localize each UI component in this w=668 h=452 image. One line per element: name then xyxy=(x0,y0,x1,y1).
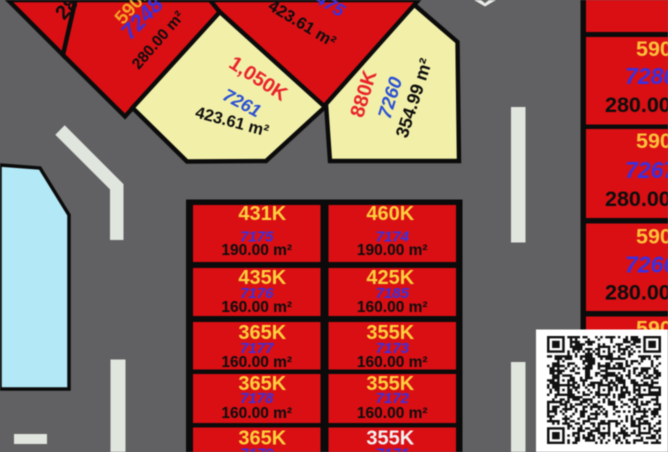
svg-text:590K: 590K xyxy=(636,225,668,249)
svg-text:160.00 m²: 160.00 m² xyxy=(357,405,428,422)
svg-text:590K: 590K xyxy=(636,37,668,61)
svg-text:7280: 7280 xyxy=(625,63,668,89)
svg-text:160.00 m²: 160.00 m² xyxy=(357,354,428,371)
svg-text:190.00 m²: 190.00 m² xyxy=(221,242,292,259)
svg-text:190.00 m²: 190.00 m² xyxy=(357,242,428,259)
svg-text:280.00 m²: 280.00 m² xyxy=(605,187,668,211)
svg-text:160.00 m²: 160.00 m² xyxy=(357,299,428,316)
svg-text:160.00 m²: 160.00 m² xyxy=(221,405,292,422)
svg-text:7267: 7267 xyxy=(625,157,668,183)
svg-text:7266: 7266 xyxy=(625,252,668,278)
svg-text:7179: 7179 xyxy=(240,446,274,452)
svg-text:160.00 m²: 160.00 m² xyxy=(221,299,292,316)
svg-text:7171: 7171 xyxy=(376,446,409,452)
svg-text:460K: 460K xyxy=(366,203,414,225)
svg-text:280.00 m²: 280.00 m² xyxy=(605,281,668,305)
svg-text:431K: 431K xyxy=(238,203,286,225)
svg-text:160.00 m²: 160.00 m² xyxy=(221,354,292,371)
svg-text:280.00 m²: 280.00 m² xyxy=(605,93,668,117)
svg-text:590K: 590K xyxy=(636,129,668,153)
